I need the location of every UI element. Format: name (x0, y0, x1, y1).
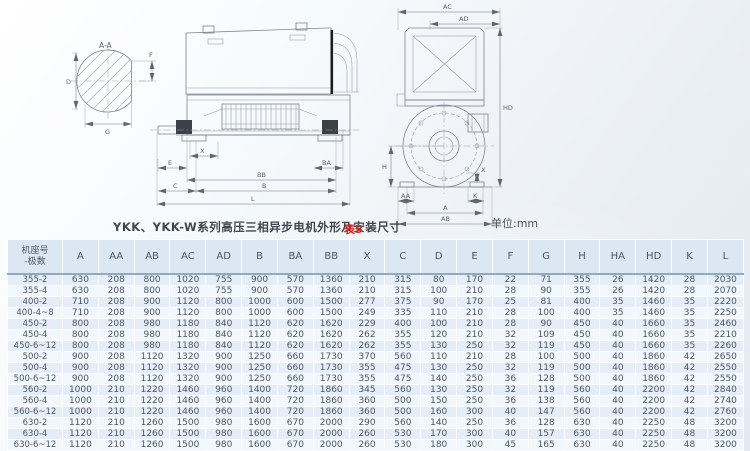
dim-value-cell: 560 (385, 385, 421, 396)
dim-value-cell: 1660 (636, 330, 672, 341)
dim-value-cell: 900 (206, 352, 242, 363)
dim-value-cell: 35 (600, 297, 636, 308)
column-header-a: A (63, 240, 99, 275)
frame-pole-cell: 500-4 (8, 363, 63, 374)
dim-value-cell: 355 (564, 286, 600, 297)
table-row: 450-6~1280020898011808401120620162026235… (8, 341, 744, 352)
dim-value-cell: 1000 (63, 407, 99, 418)
dim-value-cell: 1260 (134, 440, 170, 451)
dim-value-cell: 90 (528, 286, 564, 297)
column-header-ba: BA (277, 240, 313, 275)
column-header-frame-pole: 机座号 -极数 (8, 240, 63, 275)
dim-value-cell: 1120 (134, 352, 170, 363)
dim-value-cell: 960 (206, 385, 242, 396)
dim-value-cell: 1400 (242, 407, 278, 418)
dim-value-cell: 250 (457, 418, 493, 429)
dim-value-cell: 980 (206, 440, 242, 451)
column-header-ab: AB (134, 240, 170, 275)
dim-value-cell: 90 (528, 319, 564, 330)
frame-pole-cell: 450-2 (8, 319, 63, 330)
dim-value-cell: 1460 (170, 396, 206, 407)
dim-label-ba: BA (322, 159, 331, 167)
dim-value-cell: 1000 (242, 308, 278, 319)
dim-value-cell: 720 (277, 385, 313, 396)
table-row: 400-271020890011208001000600150027737590… (8, 297, 744, 308)
dim-value-cell: 40 (600, 385, 636, 396)
dim-value-cell: 840 (206, 341, 242, 352)
dim-value-cell: 2840 (707, 385, 743, 396)
dim-value-cell: 1420 (636, 286, 672, 297)
dim-value-cell: 250 (457, 341, 493, 352)
dim-value-cell: 1120 (134, 363, 170, 374)
dim-value-cell: 229 (349, 319, 385, 330)
dim-value-cell: 960 (206, 407, 242, 418)
dim-label-x-end: X (481, 166, 486, 174)
dim-value-cell: 3200 (707, 429, 743, 440)
dim-value-cell: 208 (98, 286, 134, 297)
column-header-bb: BB (313, 240, 349, 275)
dim-value-cell: 2760 (707, 407, 743, 418)
dim-value-cell: 560 (385, 418, 421, 429)
dim-value-cell: 42 (672, 352, 708, 363)
dim-value-cell: 600 (277, 297, 313, 308)
dim-value-cell: 40 (600, 352, 636, 363)
dim-value-cell: 290 (349, 418, 385, 429)
dim-value-cell: 500 (385, 396, 421, 407)
dim-label-c: C (173, 182, 178, 190)
dim-value-cell: 36 (492, 374, 528, 385)
dim-value-cell: 249 (349, 308, 385, 319)
dim-value-cell: 35 (672, 330, 708, 341)
dim-value-cell: 500 (385, 407, 421, 418)
dim-value-cell: 1000 (242, 297, 278, 308)
dim-value-cell: 360 (349, 407, 385, 418)
dim-value-cell: 1320 (170, 374, 206, 385)
motor-side-view: X E BA BB C B L (150, 23, 362, 206)
dim-value-cell: 2260 (707, 341, 743, 352)
dim-value-cell: 36 (492, 418, 528, 429)
dim-value-cell: 210 (457, 330, 493, 341)
dim-value-cell: 1120 (63, 440, 99, 451)
dim-value-cell: 1730 (313, 363, 349, 374)
dim-value-cell: 980 (134, 330, 170, 341)
dim-value-cell: 1220 (134, 396, 170, 407)
dim-value-cell: 980 (134, 341, 170, 352)
column-header-aa: AA (98, 240, 134, 275)
dim-value-cell: 560 (385, 352, 421, 363)
frame-header-line1: 机座号 (8, 246, 62, 257)
dim-value-cell: 1220 (134, 385, 170, 396)
dim-value-cell: 35 (672, 297, 708, 308)
dim-value-cell: 90 (421, 297, 457, 308)
dim-value-cell: 560 (564, 396, 600, 407)
dim-value-cell: 980 (206, 429, 242, 440)
frame-pole-cell: 560-6~12 (8, 407, 63, 418)
dim-value-cell: 40 (600, 429, 636, 440)
dim-value-cell: 1500 (170, 418, 206, 429)
dim-value-cell: 355 (385, 341, 421, 352)
dim-value-cell: 1180 (170, 341, 206, 352)
dim-value-cell: 25 (492, 297, 528, 308)
dim-value-cell: 48 (672, 418, 708, 429)
dim-value-cell: 100 (421, 319, 457, 330)
dim-value-cell: 630 (564, 440, 600, 451)
dim-value-cell: 900 (242, 286, 278, 297)
dim-value-cell: 840 (206, 330, 242, 341)
dimension-table: 机座号 -极数 AAAABACADBBABBXCDEFGHHAHDKL 355-… (7, 239, 744, 451)
dim-value-cell: 1260 (134, 418, 170, 429)
dim-value-cell: 1660 (636, 341, 672, 352)
dim-value-cell: 40 (600, 330, 636, 341)
dim-value-cell: 2250 (636, 429, 672, 440)
dim-value-cell: 620 (277, 319, 313, 330)
motor-end-view: AC AD (382, 3, 513, 226)
frame-pole-cell: 630-4 (8, 429, 63, 440)
dim-value-cell: 800 (206, 297, 242, 308)
dim-value-cell: 1500 (170, 440, 206, 451)
dim-value-cell: 208 (98, 319, 134, 330)
table-row: 500-490020811201320900125066017303554751… (8, 363, 744, 374)
dim-value-cell: 260 (349, 440, 385, 451)
column-header-f: F (492, 240, 528, 275)
dim-value-cell: 660 (277, 374, 313, 385)
dim-value-cell: 28 (492, 319, 528, 330)
dim-value-cell: 42 (672, 407, 708, 418)
dim-value-cell: 560 (564, 385, 600, 396)
dim-value-cell: 1180 (170, 330, 206, 341)
dim-value-cell: 28 (492, 308, 528, 319)
frame-pole-cell: 400-2 (8, 297, 63, 308)
dim-value-cell: 630 (63, 286, 99, 297)
dim-value-cell: 210 (98, 418, 134, 429)
dim-label-ad: AD (459, 15, 468, 23)
dim-value-cell: 900 (63, 374, 99, 385)
dim-value-cell: 260 (349, 429, 385, 440)
dim-value-cell: 800 (206, 308, 242, 319)
dim-value-cell: 35 (672, 341, 708, 352)
dim-value-cell: 355 (564, 274, 600, 286)
dim-value-cell: 32 (492, 385, 528, 396)
dim-value-cell: 165 (528, 440, 564, 451)
dim-value-cell: 1320 (170, 363, 206, 374)
dim-value-cell: 660 (277, 352, 313, 363)
dim-value-cell: 720 (277, 396, 313, 407)
table-row: 630-6~1211202101260150098016006702000260… (8, 440, 744, 451)
dim-value-cell: 1620 (313, 319, 349, 330)
dim-value-cell: 40 (492, 429, 528, 440)
dim-value-cell: 2460 (707, 319, 743, 330)
dim-value-cell: 670 (277, 418, 313, 429)
dim-value-cell: 900 (63, 363, 99, 374)
table-row: 560-410002101220146096014007201860360500… (8, 396, 744, 407)
frame-pole-cell: 355-4 (8, 286, 63, 297)
dim-value-cell: 210 (98, 396, 134, 407)
dim-value-cell: 208 (98, 374, 134, 385)
dim-value-cell: 170 (421, 429, 457, 440)
dim-value-cell: 755 (206, 286, 242, 297)
dim-value-cell: 530 (385, 440, 421, 451)
dim-value-cell: 570 (277, 274, 313, 286)
frame-pole-cell: 400-4~8 (8, 308, 63, 319)
dim-value-cell: 2250 (636, 418, 672, 429)
dim-value-cell: 755 (206, 274, 242, 286)
dim-value-cell: 355 (349, 363, 385, 374)
dim-value-cell: 2220 (707, 297, 743, 308)
dim-value-cell: 360 (349, 396, 385, 407)
dim-value-cell: 400 (564, 308, 600, 319)
dim-value-cell: 1460 (170, 407, 206, 418)
dim-value-cell: 210 (98, 440, 134, 451)
column-header-c: C (385, 240, 421, 275)
dim-value-cell: 210 (457, 319, 493, 330)
dim-value-cell: 42 (672, 396, 708, 407)
dim-value-cell: 900 (206, 374, 242, 385)
table-row: 500-290020811201320900125066017303705601… (8, 352, 744, 363)
column-header-l: L (707, 240, 743, 275)
dim-label-shaft-g: G (105, 128, 110, 136)
dim-value-cell: 400 (385, 319, 421, 330)
dim-label-l: L (251, 195, 255, 203)
dim-value-cell: 1420 (636, 274, 672, 286)
dim-value-cell: 1730 (313, 352, 349, 363)
dim-value-cell: 28 (492, 352, 528, 363)
dim-value-cell: 48 (672, 440, 708, 451)
dim-value-cell: 1860 (313, 407, 349, 418)
table-row: 500-6~1290020811201320900125066017303554… (8, 374, 744, 385)
column-header-b: B (242, 240, 278, 275)
dim-value-cell: 335 (385, 308, 421, 319)
dim-value-cell: 630 (63, 274, 99, 286)
dim-value-cell: 840 (206, 319, 242, 330)
dim-value-cell: 150 (421, 396, 457, 407)
dim-value-cell: 42 (672, 374, 708, 385)
dim-value-cell: 100 (528, 308, 564, 319)
dim-value-cell: 2000 (313, 429, 349, 440)
dim-label-ac: AC (443, 3, 452, 11)
dim-label-x-side: X (200, 147, 205, 155)
dim-value-cell: 1460 (170, 385, 206, 396)
column-header-x: X (349, 240, 385, 275)
dim-value-cell: 2550 (707, 374, 743, 385)
dim-value-cell: 710 (63, 308, 99, 319)
dim-value-cell: 1620 (313, 330, 349, 341)
dim-value-cell: 250 (457, 374, 493, 385)
dim-label-shaft-f: F (149, 51, 153, 59)
dim-value-cell: 1250 (242, 374, 278, 385)
table-row: 560-210002101220146096014007201860345560… (8, 385, 744, 396)
dim-label-bb: BB (257, 171, 266, 179)
dim-value-cell: 210 (457, 352, 493, 363)
dim-value-cell: 28 (672, 274, 708, 286)
dim-value-cell: 1860 (636, 363, 672, 374)
dim-value-cell: 3200 (707, 440, 743, 451)
column-header-hd: HD (636, 240, 672, 275)
dim-value-cell: 157 (528, 429, 564, 440)
dim-value-cell: 1260 (134, 429, 170, 440)
dim-value-cell: 960 (206, 396, 242, 407)
dim-value-cell: 210 (98, 407, 134, 418)
dim-value-cell: 208 (98, 363, 134, 374)
column-header-k: K (672, 240, 708, 275)
dim-value-cell: 110 (421, 352, 457, 363)
dim-value-cell: 22 (492, 274, 528, 286)
dim-value-cell: 81 (528, 297, 564, 308)
dim-value-cell: 250 (457, 396, 493, 407)
frame-pole-cell: 355-2 (8, 274, 63, 286)
column-header-h: H (564, 240, 600, 275)
dim-value-cell: 1400 (242, 385, 278, 396)
dim-value-cell: 110 (421, 308, 457, 319)
dim-value-cell: 1460 (636, 297, 672, 308)
column-header-ad: AD (206, 240, 242, 275)
dim-value-cell: 500 (564, 352, 600, 363)
dim-value-cell: 1360 (313, 286, 349, 297)
dim-value-cell: 2000 (313, 440, 349, 451)
frame-pole-cell: 560-4 (8, 396, 63, 407)
dim-value-cell: 530 (385, 429, 421, 440)
dim-value-cell: 42 (672, 385, 708, 396)
dim-value-cell: 570 (277, 286, 313, 297)
dim-value-cell: 2200 (636, 407, 672, 418)
dim-value-cell: 40 (600, 341, 636, 352)
dim-value-cell: 250 (457, 385, 493, 396)
table-number-tag: 表5 (344, 221, 363, 237)
dim-value-cell: 1120 (134, 374, 170, 385)
dim-value-cell: 3200 (707, 418, 743, 429)
dim-value-cell: 500 (564, 374, 600, 385)
column-header-e: E (457, 240, 493, 275)
table-row: 355-463020880010207559005701360210315100… (8, 286, 744, 297)
dim-value-cell: 40 (492, 407, 528, 418)
dim-label-b: B (262, 182, 266, 190)
dim-value-cell: 1320 (170, 352, 206, 363)
dim-value-cell: 210 (349, 274, 385, 286)
dim-value-cell: 630 (564, 429, 600, 440)
dim-value-cell: 800 (63, 330, 99, 341)
dim-value-cell: 1400 (242, 396, 278, 407)
dim-value-cell: 800 (134, 274, 170, 286)
dim-value-cell: 980 (206, 418, 242, 429)
dim-value-cell: 208 (98, 352, 134, 363)
table-row: 450-280020898011808401120620162022940010… (8, 319, 744, 330)
dim-label-a: A (443, 204, 448, 212)
dim-value-cell: 1500 (313, 308, 349, 319)
table-body: 355-263020880010207559005701360210315801… (8, 274, 744, 451)
dim-value-cell: 1600 (242, 440, 278, 451)
dim-value-cell: 1860 (313, 396, 349, 407)
dim-label-k: K (473, 192, 478, 200)
dim-value-cell: 140 (421, 374, 457, 385)
dim-value-cell: 119 (528, 341, 564, 352)
dim-value-cell: 130 (421, 341, 457, 352)
dim-value-cell: 26 (600, 286, 636, 297)
dim-value-cell: 300 (457, 407, 493, 418)
dim-value-cell: 119 (528, 363, 564, 374)
dim-value-cell: 355 (349, 374, 385, 385)
dim-value-cell: 277 (349, 297, 385, 308)
dim-value-cell: 600 (277, 308, 313, 319)
dim-value-cell: 1860 (636, 374, 672, 385)
dim-value-cell: 400 (564, 297, 600, 308)
dim-value-cell: 300 (457, 429, 493, 440)
dim-value-cell: 130 (421, 363, 457, 374)
dim-value-cell: 1020 (170, 286, 206, 297)
table-row: 560-6~1210002101220146096014007201860360… (8, 407, 744, 418)
dim-value-cell: 900 (134, 308, 170, 319)
dim-value-cell: 2740 (707, 396, 743, 407)
dim-value-cell: 208 (98, 341, 134, 352)
dim-value-cell: 28 (492, 286, 528, 297)
dim-value-cell: 36 (492, 396, 528, 407)
table-header-row: 机座号 -极数 AAAABACADBBABBXCDEFGHHAHDKL (8, 240, 744, 275)
frame-pole-cell: 630-6~12 (8, 440, 63, 451)
dim-value-cell: 1860 (313, 385, 349, 396)
dim-value-cell: 2200 (636, 396, 672, 407)
dim-value-cell: 1460 (636, 308, 672, 319)
dim-value-cell: 1120 (63, 429, 99, 440)
dim-value-cell: 40 (600, 407, 636, 418)
dim-value-cell: 1120 (170, 308, 206, 319)
dim-label-aa: AA (401, 192, 411, 200)
dim-value-cell: 630 (564, 418, 600, 429)
dim-value-cell: 2550 (707, 363, 743, 374)
dim-value-cell: 180 (421, 440, 457, 451)
dim-value-cell: 450 (564, 319, 600, 330)
dim-value-cell: 670 (277, 429, 313, 440)
dim-value-cell: 800 (63, 319, 99, 330)
dim-value-cell: 48 (672, 429, 708, 440)
dim-value-cell: 1500 (170, 429, 206, 440)
dim-value-cell: 262 (349, 341, 385, 352)
dim-value-cell: 2250 (707, 308, 743, 319)
frame-pole-cell: 450-4 (8, 330, 63, 341)
dim-value-cell: 1020 (170, 274, 206, 286)
dim-value-cell: 40 (600, 418, 636, 429)
dim-value-cell: 800 (134, 286, 170, 297)
table-row: 400-4~8710208900112080010006001500249335… (8, 308, 744, 319)
dim-value-cell: 1500 (313, 297, 349, 308)
dim-value-cell: 620 (277, 341, 313, 352)
dim-value-cell: 2200 (636, 385, 672, 396)
dim-value-cell: 2650 (707, 352, 743, 363)
dim-value-cell: 262 (349, 330, 385, 341)
dim-value-cell: 1120 (242, 319, 278, 330)
dim-value-cell: 1120 (242, 330, 278, 341)
dim-value-cell: 345 (349, 385, 385, 396)
dim-value-cell: 45 (492, 440, 528, 451)
frame-pole-cell: 630-2 (8, 418, 63, 429)
dim-value-cell: 315 (385, 274, 421, 286)
dim-value-cell: 42 (672, 363, 708, 374)
dim-value-cell: 475 (385, 374, 421, 385)
dim-value-cell: 40 (600, 374, 636, 385)
dim-label-e: E (168, 159, 172, 167)
dim-value-cell: 170 (457, 297, 493, 308)
dim-value-cell: 1250 (242, 352, 278, 363)
dim-value-cell: 1180 (170, 319, 206, 330)
dim-value-cell: 1660 (636, 319, 672, 330)
dim-value-cell: 26 (600, 274, 636, 286)
dim-value-cell: 147 (528, 407, 564, 418)
unit-label: 单位:mm (491, 215, 538, 231)
dim-value-cell: 160 (421, 407, 457, 418)
dim-value-cell: 128 (528, 374, 564, 385)
dim-value-cell: 1620 (313, 341, 349, 352)
dim-value-cell: 375 (385, 297, 421, 308)
dim-value-cell: 80 (421, 274, 457, 286)
dim-value-cell: 300 (457, 440, 493, 451)
dim-value-cell: 500 (564, 363, 600, 374)
